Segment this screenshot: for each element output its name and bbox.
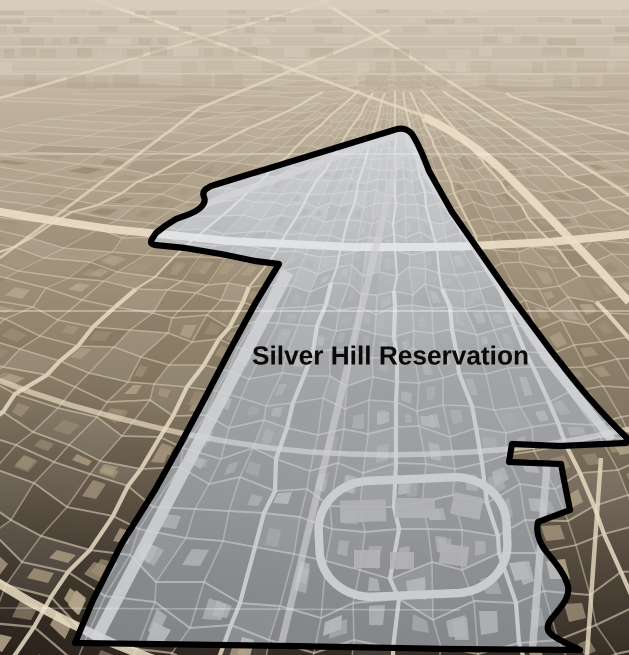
svg-text:Silver Hill Reservation: Silver Hill Reservation [252,343,529,371]
